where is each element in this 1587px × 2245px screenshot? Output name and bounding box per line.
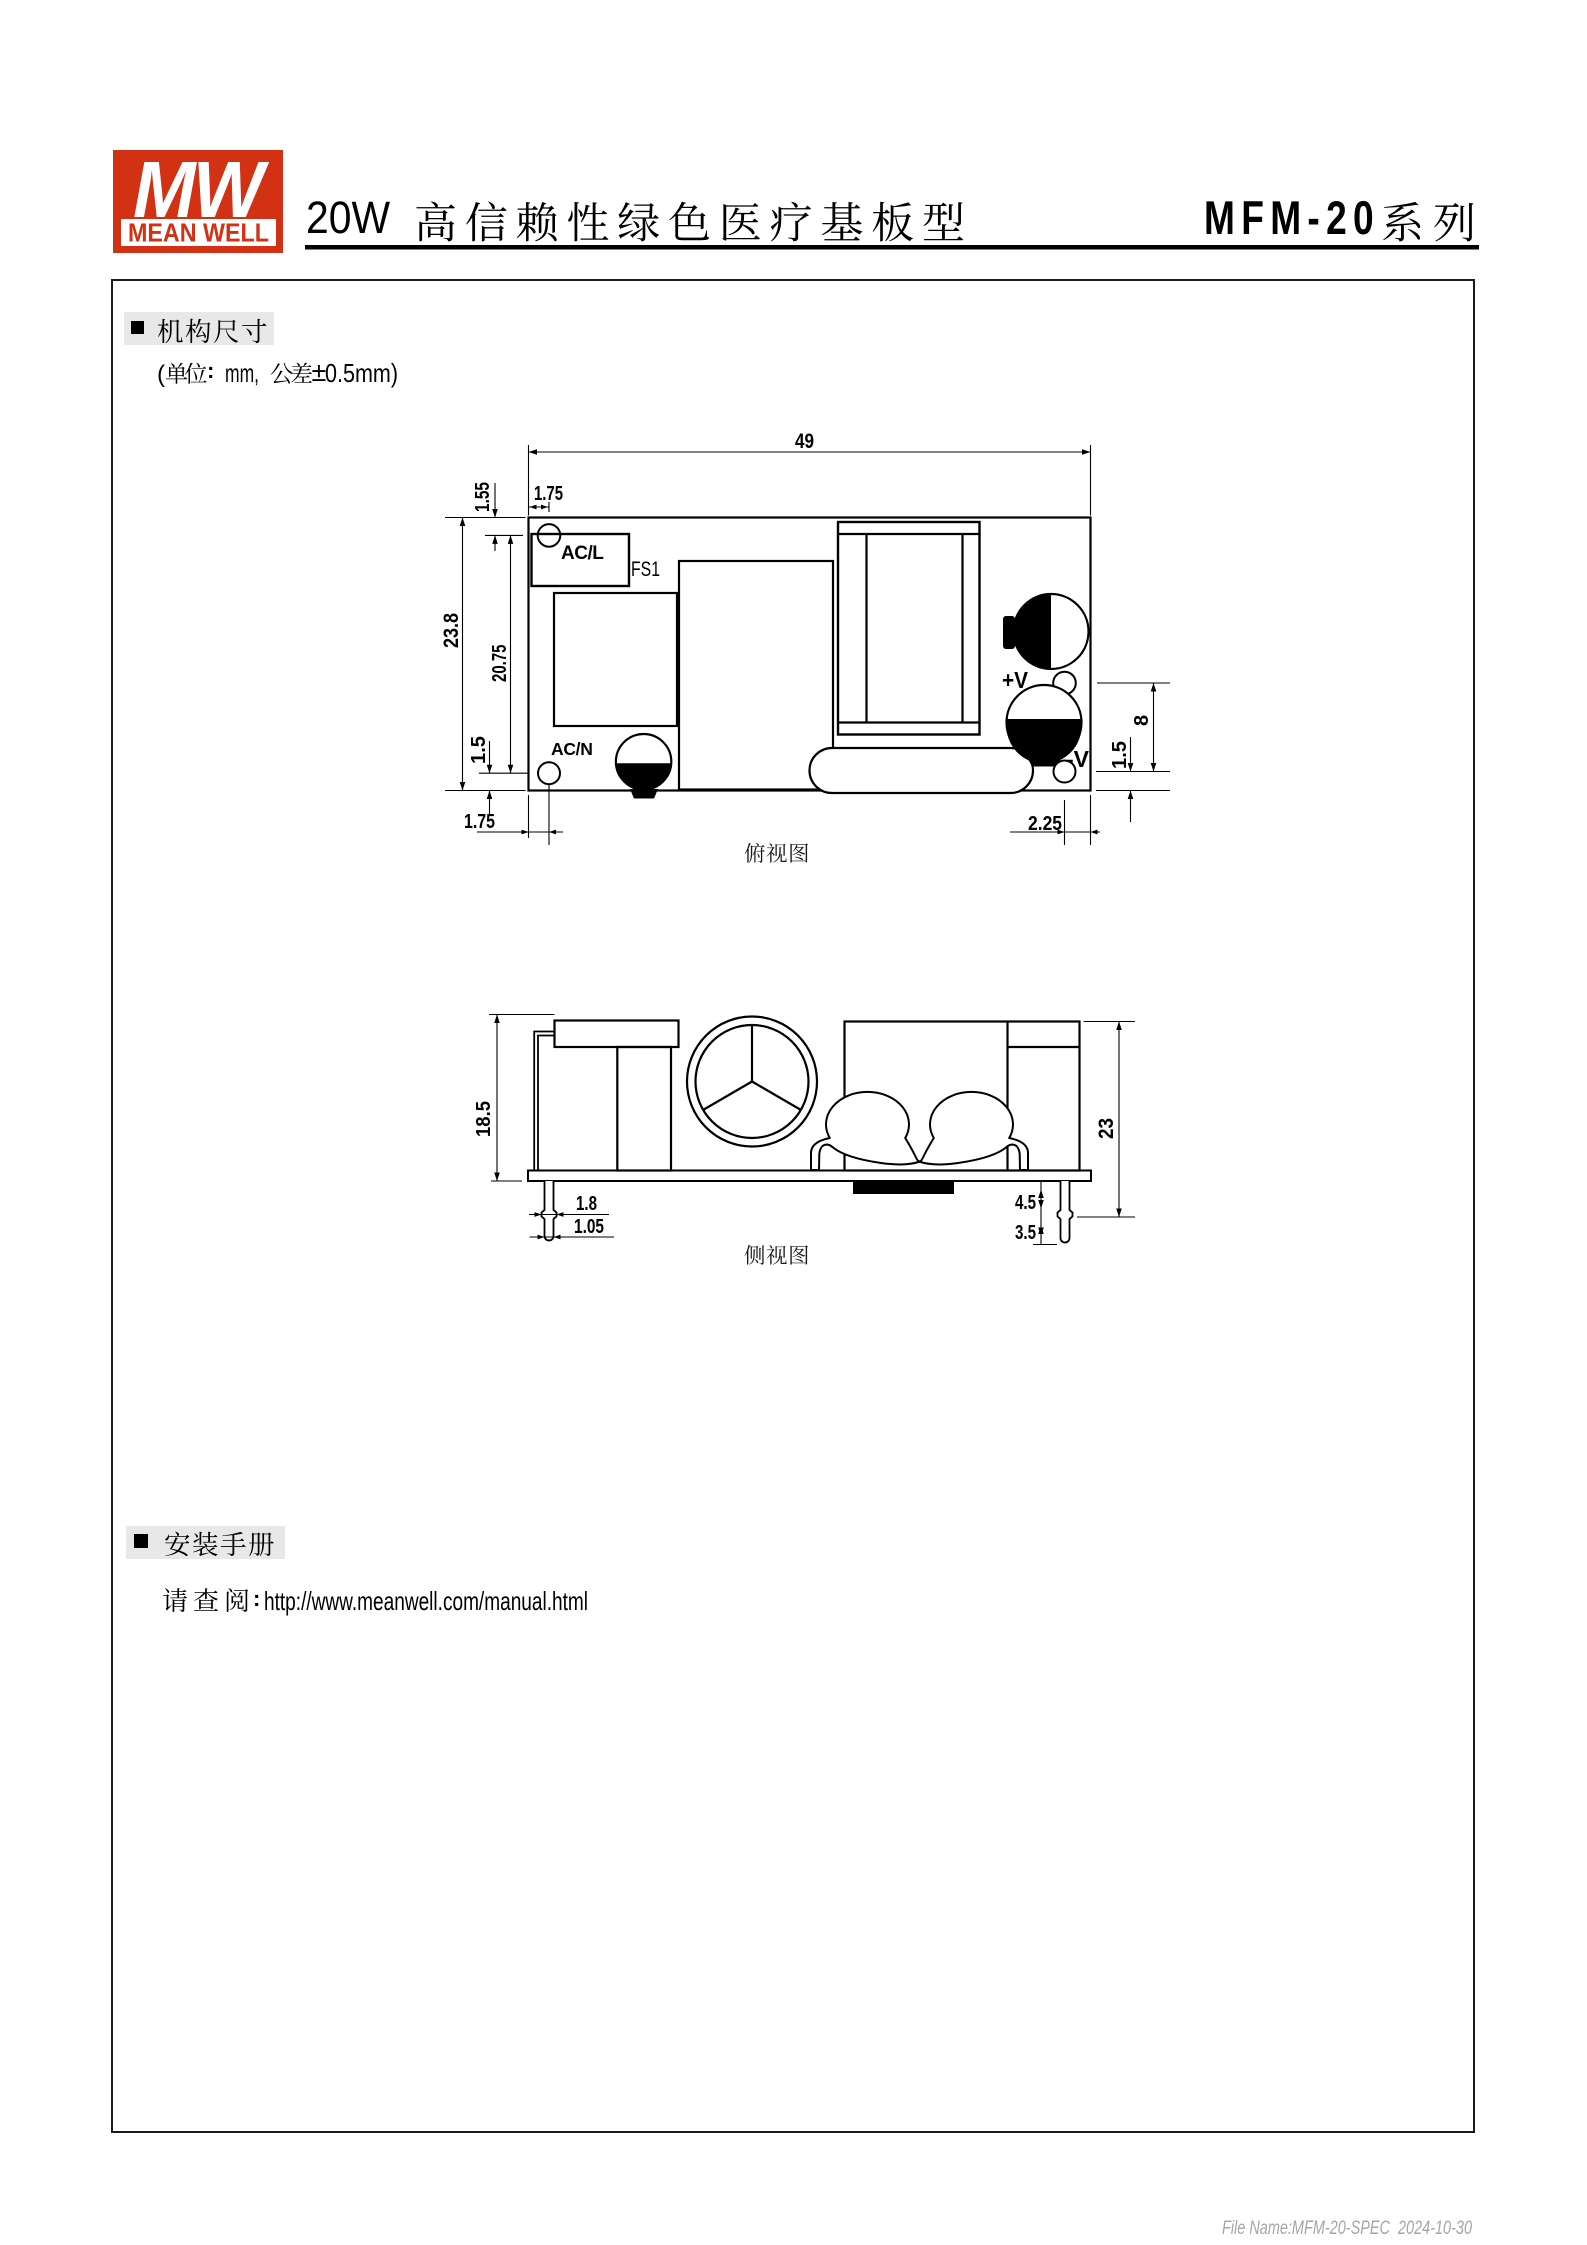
svg-text:AC/N: AC/N <box>551 739 593 759</box>
svg-text:1.5: 1.5 <box>1109 741 1131 769</box>
svg-text:FS1: FS1 <box>631 558 660 581</box>
svg-text:1.75: 1.75 <box>464 811 495 833</box>
svg-text:MFM-20: MFM-20 <box>1204 191 1380 244</box>
svg-text:1.05: 1.05 <box>574 1216 604 1238</box>
svg-text:2.25: 2.25 <box>1028 813 1062 835</box>
svg-text:20W: 20W <box>306 192 390 243</box>
svg-text:http://www.meanwell.com/manual: http://www.meanwell.com/manual.html <box>264 1586 588 1616</box>
svg-text:18.5: 18.5 <box>473 1101 495 1137</box>
svg-text:23.8: 23.8 <box>440 613 463 648</box>
svg-text:MEAN WELL: MEAN WELL <box>128 220 269 248</box>
svg-text:1.55: 1.55 <box>472 482 494 512</box>
svg-text:mm,: mm, <box>225 358 259 388</box>
svg-text:0.5mm): 0.5mm) <box>325 358 398 388</box>
svg-text:3.5: 3.5 <box>1015 1222 1036 1244</box>
svg-text:4.5: 4.5 <box>1015 1192 1036 1214</box>
svg-text:49: 49 <box>795 430 814 453</box>
svg-text::: : <box>253 1586 260 1611</box>
svg-text:1.75: 1.75 <box>534 483 563 505</box>
svg-text:+V: +V <box>1002 667 1029 693</box>
svg-text:1.5: 1.5 <box>468 736 490 764</box>
svg-text:(: ( <box>157 361 165 388</box>
svg-text:1.8: 1.8 <box>576 1193 597 1215</box>
svg-text:8: 8 <box>1131 715 1153 726</box>
svg-text:23: 23 <box>1095 1118 1118 1139</box>
svg-text:AC/L: AC/L <box>561 543 604 564</box>
svg-text:20.75: 20.75 <box>489 645 511 683</box>
svg-text:File Name:MFM-20-SPEC 2024-10: File Name:MFM-20-SPEC 2024-10-30 <box>1222 2218 1472 2239</box>
svg-text::: : <box>207 358 214 383</box>
